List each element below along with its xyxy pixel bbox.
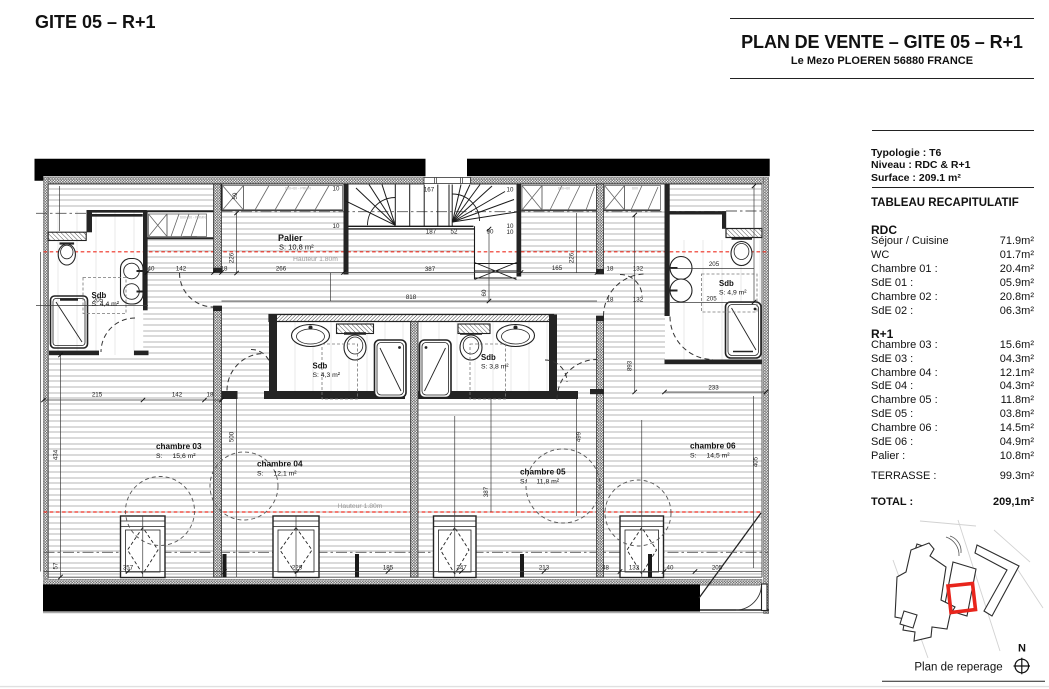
- svg-text:chambre 04: chambre 04: [257, 460, 303, 469]
- svg-text:chambre 05: chambre 05: [520, 468, 566, 477]
- svg-text:167: 167: [424, 187, 435, 194]
- svg-text:52: 52: [451, 229, 458, 236]
- svg-text:chambre 06: chambre 06: [690, 442, 736, 451]
- svg-text:Sdb: Sdb: [92, 291, 107, 300]
- svg-text:S:: S:: [257, 471, 264, 478]
- svg-text:Palier: Palier: [278, 233, 303, 243]
- svg-text:57: 57: [53, 562, 60, 569]
- svg-text:165: 165: [552, 265, 563, 272]
- svg-text:S: 4,4 m²: S: 4,4 m²: [92, 301, 120, 308]
- svg-text:142: 142: [176, 266, 187, 273]
- svg-text:chambre 03: chambre 03: [156, 442, 202, 451]
- svg-text:142: 142: [172, 392, 183, 399]
- svg-text:600+60 - PRMN: 600+60 - PRMN: [285, 187, 311, 191]
- svg-text:S:: S:: [690, 453, 697, 460]
- svg-text:14,5 m²: 14,5 m²: [707, 453, 731, 460]
- svg-text:205: 205: [709, 261, 720, 268]
- svg-text:266: 266: [276, 266, 287, 273]
- svg-text:185: 185: [383, 565, 394, 572]
- svg-text:Sdb: Sdb: [481, 353, 496, 362]
- svg-text:213: 213: [539, 565, 550, 572]
- svg-text:205: 205: [712, 565, 723, 572]
- svg-text:600+60 - PRMN: 600+60 - PRMN: [180, 216, 206, 220]
- svg-text:40: 40: [667, 565, 674, 572]
- svg-text:893: 893: [627, 360, 634, 371]
- svg-text:18: 18: [207, 392, 214, 399]
- svg-text:600+60: 600+60: [558, 187, 570, 191]
- svg-text:226: 226: [569, 252, 576, 263]
- svg-text:405: 405: [753, 456, 760, 467]
- svg-text:S: 3,8 m²: S: 3,8 m²: [481, 364, 509, 371]
- svg-text:387: 387: [425, 266, 436, 273]
- svg-text:10: 10: [507, 187, 514, 194]
- svg-text:59: 59: [232, 192, 239, 199]
- svg-text:347: 347: [456, 565, 467, 572]
- svg-text:S: 10,8 m²: S: 10,8 m²: [279, 243, 314, 252]
- svg-text:S: 4,3 m²: S: 4,3 m²: [313, 372, 341, 379]
- svg-text:215: 215: [92, 392, 103, 399]
- svg-text:434: 434: [53, 449, 60, 460]
- svg-text:132: 132: [629, 565, 640, 572]
- svg-text:Sdb: Sdb: [719, 279, 734, 288]
- svg-text:818: 818: [406, 294, 417, 301]
- svg-text:18: 18: [221, 266, 228, 273]
- svg-text:10: 10: [333, 186, 340, 193]
- svg-text:18: 18: [607, 297, 614, 304]
- svg-text:60: 60: [481, 289, 488, 296]
- svg-text:11,8 m²: 11,8 m²: [537, 479, 560, 486]
- svg-text:10: 10: [507, 229, 514, 236]
- svg-text:500: 500: [229, 431, 236, 442]
- svg-text:Hauteur 1.80m: Hauteur 1.80m: [338, 503, 383, 510]
- svg-text:Hauteur 1.80m: Hauteur 1.80m: [293, 256, 338, 263]
- svg-text:187: 187: [426, 229, 437, 236]
- svg-text:40: 40: [148, 266, 155, 273]
- svg-text:Sdb: Sdb: [313, 362, 328, 371]
- svg-text:12,1 m²: 12,1 m²: [274, 471, 298, 478]
- svg-text:600: 600: [632, 187, 638, 191]
- svg-text:205: 205: [706, 296, 717, 303]
- svg-text:220: 220: [292, 565, 303, 572]
- svg-text:132: 132: [633, 266, 644, 273]
- svg-text:N: N: [1018, 643, 1026, 655]
- svg-text:S:: S:: [520, 479, 527, 486]
- svg-text:18: 18: [607, 266, 614, 273]
- svg-text:226: 226: [229, 252, 236, 263]
- svg-text:132: 132: [633, 297, 644, 304]
- svg-text:10: 10: [333, 223, 340, 230]
- svg-text:Plan de reperage: Plan de reperage: [914, 662, 1002, 674]
- svg-text:387: 387: [483, 486, 490, 497]
- svg-text:90: 90: [487, 229, 494, 236]
- svg-text:48: 48: [602, 565, 609, 572]
- svg-text:233: 233: [708, 385, 719, 392]
- svg-text:499: 499: [576, 431, 583, 442]
- svg-text:357: 357: [123, 565, 134, 572]
- svg-text:S: 4,9 m²: S: 4,9 m²: [719, 290, 747, 297]
- svg-text:S:: S:: [156, 453, 163, 460]
- svg-text:15,6 m²: 15,6 m²: [173, 453, 197, 460]
